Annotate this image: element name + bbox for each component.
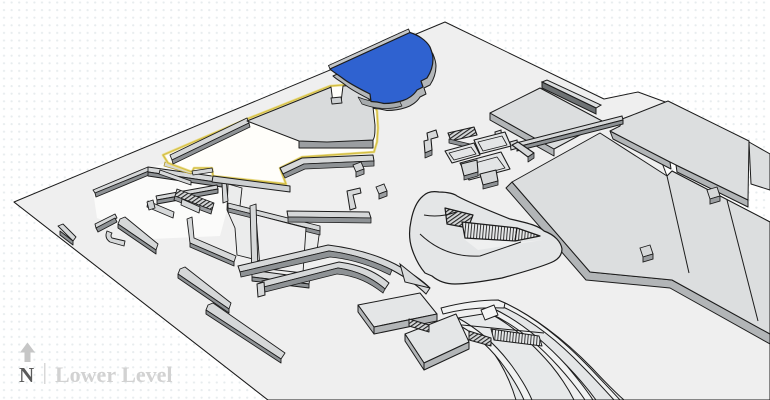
svg-text:N: N <box>19 363 34 387</box>
svg-text:Lower Level: Lower Level <box>55 362 173 387</box>
